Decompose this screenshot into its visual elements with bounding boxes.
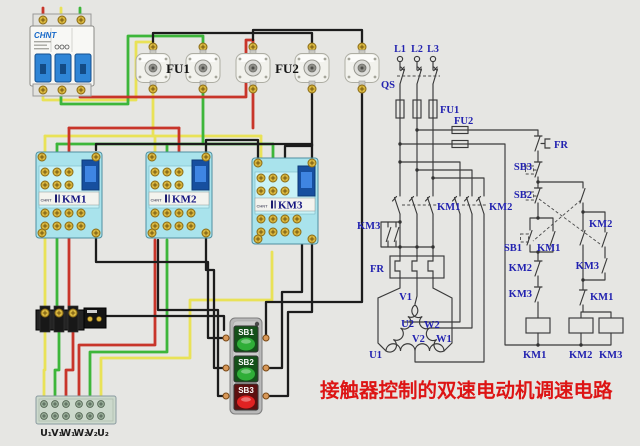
- screw-terminal: [58, 86, 66, 94]
- fu2-schematic-label: FU2: [454, 116, 473, 127]
- button-sb2: SB2: [234, 356, 258, 382]
- screw-terminal: [58, 16, 66, 24]
- motor-u2: U2: [401, 319, 414, 330]
- diagram-canvas: CHNT FU1 FU2 CHNT K: [0, 0, 640, 446]
- fr-ctl-label: FR: [554, 140, 568, 151]
- motor-u1: U1: [369, 350, 382, 361]
- coil-label-km2: KM2: [569, 350, 592, 361]
- motor-v2: V2: [412, 334, 425, 345]
- button-terminal: [263, 335, 269, 341]
- button-label: SB1: [238, 328, 254, 337]
- button-sb3: SB3: [234, 384, 258, 410]
- diagram-title: 接触器控制的双速电动机调速电路: [320, 379, 613, 402]
- contactor-km3: CHNT KM3: [252, 158, 318, 244]
- motor-w2: W2: [424, 320, 440, 331]
- fu2-label: FU2: [275, 61, 299, 76]
- contactor-km2: CHNT KM2: [146, 152, 212, 238]
- sb2-label: SB2: [514, 190, 532, 201]
- contactor-km1: CHNT KM1: [36, 152, 102, 238]
- contactor-brand: CHNT: [41, 198, 53, 203]
- terminal-label: U₂: [97, 428, 109, 439]
- contactor-label: KM2: [172, 194, 197, 206]
- km1-nc-label: KM1: [590, 292, 613, 303]
- phase-label-l3: L3: [427, 44, 439, 55]
- phase-label-l1: L1: [394, 44, 406, 55]
- screw-terminal: [39, 16, 47, 24]
- button-terminal: [223, 365, 229, 371]
- pushbutton-station: SB1 SB2 SB3: [223, 318, 269, 414]
- km3-main-label: KM3: [357, 221, 380, 232]
- screw-terminal: [77, 16, 85, 24]
- terminal-block: [36, 306, 106, 332]
- fu1-schematic-label: FU1: [440, 105, 459, 116]
- screw-terminal: [39, 86, 47, 94]
- motor-v1: V1: [399, 292, 412, 303]
- button-sb1: SB1: [234, 326, 258, 352]
- sb1-label: SB1: [504, 243, 522, 254]
- km1-main-label: KM1: [437, 202, 460, 213]
- button-terminal: [223, 335, 229, 341]
- km2-main-label: KM2: [489, 202, 512, 213]
- motor-w1: W1: [436, 334, 452, 345]
- km2-nc-label: KM2: [509, 263, 532, 274]
- qs-label: QS: [381, 80, 395, 91]
- breaker-brand: CHNT: [34, 31, 57, 40]
- coil-label-km3: KM3: [599, 350, 622, 361]
- circuit-breaker: CHNT: [30, 14, 94, 96]
- km3-nc-label: KM3: [509, 289, 532, 300]
- wiring-diagram-screenshot: CHNT FU1 FU2 CHNT K: [0, 0, 640, 446]
- terminal-label: V₂: [86, 428, 98, 439]
- screw-terminal: [77, 86, 85, 94]
- motor-terminal-strip: U₁ V₁ W₁ W₂ V₂ U₂: [36, 396, 116, 439]
- km3-hold-label: KM3: [576, 261, 599, 272]
- contactor-label: KM1: [62, 194, 86, 206]
- button-terminal: [223, 393, 229, 399]
- sb3-label: SB3: [514, 162, 532, 173]
- km2-hold-label: KM2: [589, 219, 612, 230]
- coil-label-km1: KM1: [523, 350, 546, 361]
- phase-label-l2: L2: [411, 44, 423, 55]
- contactor-brand: CHNT: [257, 204, 269, 209]
- fr-main-label: FR: [370, 264, 384, 275]
- button-label: SB2: [238, 358, 254, 367]
- button-terminal: [263, 393, 269, 399]
- km1-aux-label: KM1: [537, 243, 560, 254]
- button-terminal: [263, 365, 269, 371]
- contactor-label: KM3: [278, 200, 303, 212]
- button-label: SB3: [238, 386, 254, 395]
- terminal-label: U₁: [40, 428, 52, 439]
- contactor-brand: CHNT: [151, 198, 163, 203]
- fu1-label: FU1: [166, 61, 190, 76]
